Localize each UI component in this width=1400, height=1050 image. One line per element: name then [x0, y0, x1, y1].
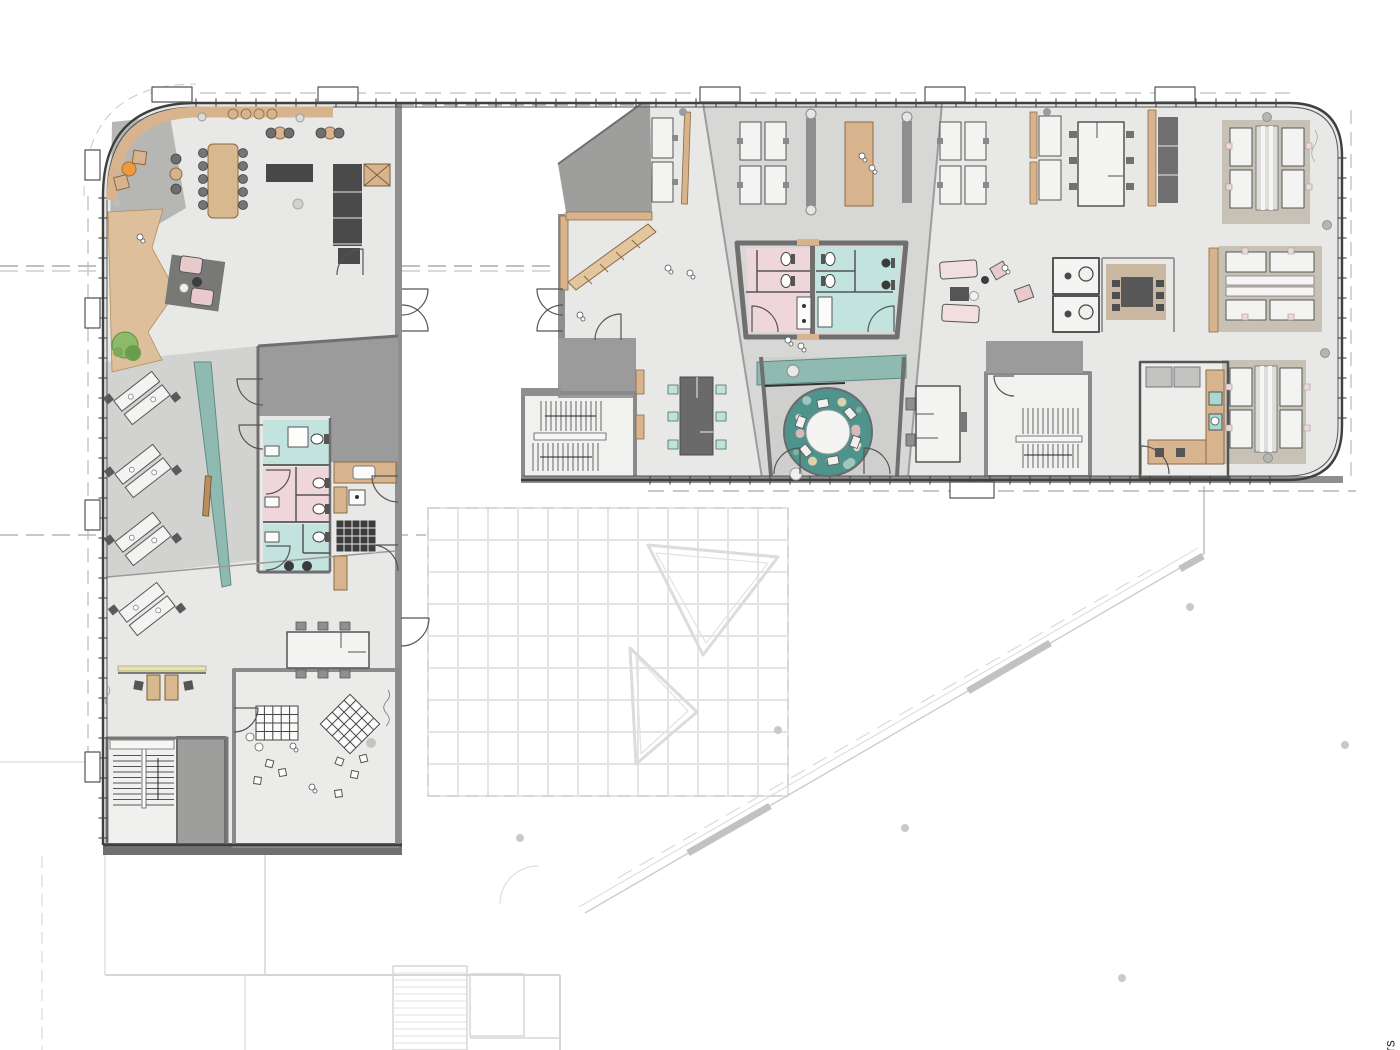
- high-table: [170, 168, 182, 180]
- window-bay: [85, 500, 100, 530]
- booth-armchair: [1079, 305, 1093, 319]
- toilet: [825, 253, 835, 266]
- plan-circle: [1065, 273, 1072, 280]
- toilet: [311, 434, 323, 444]
- stool: [266, 128, 276, 138]
- chair: [133, 680, 143, 690]
- toilet: [313, 478, 325, 488]
- plan-rect: [1226, 276, 1314, 285]
- wood-desk: [147, 675, 160, 700]
- sink-teal: [1209, 392, 1222, 405]
- plan-rect: [986, 341, 1083, 373]
- conference-table: [1078, 122, 1124, 206]
- stool: [316, 128, 326, 138]
- plan-circle: [970, 292, 979, 301]
- bench-wood: [566, 212, 652, 220]
- column: [1263, 113, 1272, 122]
- storage-room: [558, 104, 652, 212]
- plan-rect: [1269, 126, 1273, 210]
- plan-circle: [246, 733, 254, 741]
- plan-circle: [113, 199, 121, 207]
- orange-side-table: [122, 162, 136, 176]
- stool: [171, 154, 181, 164]
- plan-rect: [325, 504, 330, 514]
- desk: [1282, 128, 1304, 166]
- column: [679, 108, 687, 116]
- plan-circle: [241, 109, 251, 119]
- divider: [806, 118, 816, 206]
- desk: [652, 118, 673, 158]
- plan-circle: [806, 109, 816, 119]
- plan-rect: [1306, 143, 1312, 149]
- plant: [125, 345, 141, 361]
- plan-line: [688, 806, 770, 853]
- plan-rect: [1226, 425, 1232, 431]
- cabinet: [1174, 367, 1200, 387]
- sideboard: [266, 164, 313, 182]
- plan-rect: [325, 532, 330, 542]
- door-arc: [402, 305, 428, 331]
- chair: [1126, 131, 1134, 138]
- coffee-table: [950, 287, 969, 301]
- wood-stool: [132, 150, 147, 165]
- column: [1264, 454, 1273, 463]
- round-booth-table: [806, 410, 850, 454]
- high-bench-wood: [845, 122, 873, 206]
- toilet: [781, 275, 791, 288]
- wood-desk: [165, 675, 178, 700]
- chair: [199, 201, 208, 210]
- chair: [1069, 157, 1077, 164]
- sink: [265, 446, 279, 456]
- desk: [1280, 410, 1302, 448]
- chair: [1156, 280, 1164, 287]
- plan-rect: [534, 433, 606, 440]
- window-bay: [85, 298, 100, 328]
- chair: [1112, 280, 1120, 287]
- chair: [1156, 292, 1164, 299]
- chair: [340, 670, 350, 678]
- plan-rect: [1256, 126, 1278, 210]
- cube-stool: [278, 768, 286, 776]
- column: [1043, 108, 1051, 116]
- sink-counter: [818, 297, 832, 327]
- plan-polygon: [656, 553, 768, 643]
- bench-wood: [560, 216, 568, 290]
- cube-stool: [265, 759, 274, 768]
- toilet: [313, 504, 325, 514]
- plan-line: [579, 548, 1198, 907]
- chair: [906, 434, 915, 446]
- long-wood-table: [208, 144, 238, 218]
- wood-strip: [1030, 112, 1037, 158]
- plan-rect: [1260, 366, 1264, 452]
- chair: [1126, 183, 1134, 190]
- divider: [902, 121, 912, 203]
- stool: [171, 184, 181, 194]
- pendant: [198, 113, 206, 121]
- window-bay: [700, 87, 740, 102]
- plan-rect: [1226, 287, 1314, 296]
- plan-rect: [821, 254, 825, 264]
- plan-rect: [1226, 143, 1232, 149]
- plan-circle: [774, 726, 782, 734]
- plan-rect: [1261, 126, 1265, 210]
- wood-strip: [1209, 248, 1218, 332]
- plan-circle: [1341, 741, 1349, 749]
- stool: [1176, 448, 1185, 457]
- chair: [199, 162, 208, 171]
- locker: [1158, 117, 1178, 203]
- chair: [906, 398, 915, 410]
- plan-circle: [802, 319, 806, 323]
- chair-teal: [716, 412, 726, 421]
- wood-strip: [1030, 162, 1037, 204]
- chair: [296, 670, 306, 678]
- cube-stool: [335, 790, 343, 798]
- window-bay: [85, 752, 100, 782]
- shower: [288, 427, 308, 447]
- stair-treads: [393, 973, 467, 1043]
- plan-polygon: [636, 656, 688, 754]
- floor-plan-drawing: [0, 0, 1400, 1050]
- wood-stool: [114, 175, 130, 191]
- plan-line: [968, 643, 1050, 691]
- sink: [265, 497, 279, 507]
- plan-circle: [516, 834, 524, 842]
- window-bay: [950, 482, 994, 498]
- chair: [183, 680, 193, 690]
- chair: [239, 162, 248, 171]
- plan-circle: [1118, 974, 1126, 982]
- plan-rect: [1268, 366, 1272, 452]
- plan-rect: [110, 740, 174, 749]
- urinal: [302, 561, 312, 571]
- desk: [652, 162, 673, 202]
- plant: [113, 347, 123, 357]
- urinal: [284, 561, 294, 571]
- chair: [239, 149, 248, 158]
- chair: [1069, 183, 1077, 190]
- plan-rect: [791, 276, 795, 286]
- cabinet: [1146, 367, 1172, 387]
- plan-rect: [1242, 248, 1248, 254]
- plan-rect: [1016, 436, 1082, 442]
- plan-line: [1180, 556, 1203, 569]
- column: [1321, 349, 1330, 358]
- plan-rect: [521, 388, 561, 396]
- chair: [199, 175, 208, 184]
- plan-circle: [228, 109, 238, 119]
- wood-threshold: [797, 334, 819, 340]
- chair-teal: [668, 385, 678, 394]
- chair: [239, 201, 248, 210]
- plan-circle: [806, 205, 816, 215]
- chair: [296, 622, 306, 630]
- plan-circle: [180, 284, 189, 293]
- desk: [1230, 410, 1252, 448]
- elevator-shaft: [177, 737, 225, 844]
- chair-teal: [716, 385, 726, 394]
- plan-rect: [324, 434, 329, 444]
- chair: [199, 188, 208, 197]
- desk: [1226, 252, 1266, 272]
- plan-circle: [901, 824, 909, 832]
- chair: [1112, 292, 1120, 299]
- stool: [284, 128, 294, 138]
- floor-plan-page: © blocher partners: [0, 0, 1400, 1050]
- desk: [1039, 160, 1061, 200]
- sofa-pink: [942, 304, 980, 323]
- plan-rect: [791, 254, 795, 264]
- plan-rect: [1242, 314, 1248, 320]
- plan-rect: [1288, 314, 1294, 320]
- plan-circle: [902, 112, 912, 122]
- chair: [239, 175, 248, 184]
- plan-rect: [1304, 425, 1310, 431]
- wood-strip: [636, 415, 644, 439]
- sink: [265, 532, 279, 542]
- desk: [1280, 368, 1302, 406]
- window-bay: [152, 87, 192, 102]
- window-bay: [1155, 87, 1195, 102]
- plan-rect: [1306, 184, 1312, 190]
- meeting-table: [287, 632, 369, 668]
- yellow-bench: [118, 666, 206, 671]
- meeting-table-dark: [1121, 277, 1153, 307]
- pendant: [296, 114, 304, 122]
- plan-circle: [981, 276, 989, 284]
- desk: [1230, 170, 1252, 208]
- atrium-ceiling-grid: [428, 508, 788, 796]
- plan-circle: [1211, 417, 1219, 425]
- plan-circle: [1186, 603, 1194, 611]
- sofa-pink: [939, 260, 977, 280]
- toilet: [825, 275, 835, 288]
- desk: [1230, 128, 1252, 166]
- chair: [239, 188, 248, 197]
- wood-strip: [636, 370, 644, 394]
- door-arc: [402, 289, 428, 315]
- urinal: [882, 259, 891, 268]
- armchair-pink: [190, 288, 214, 307]
- chair: [1069, 131, 1077, 138]
- chair: [318, 670, 328, 678]
- plan-circle: [267, 109, 277, 119]
- plan-rect: [1226, 384, 1232, 390]
- plan-circle: [255, 743, 263, 751]
- booth-armchair: [1079, 267, 1093, 281]
- plan-rect: [325, 478, 330, 488]
- plan-rect: [142, 748, 146, 808]
- chair-teal: [668, 412, 678, 421]
- chair-teal: [716, 440, 726, 449]
- stool: [334, 128, 344, 138]
- desk: [1039, 116, 1061, 156]
- neighbor-elevator: [470, 974, 524, 1036]
- chair: [340, 622, 350, 630]
- chair: [199, 149, 208, 158]
- plan-rect: [1288, 248, 1294, 254]
- chair: [318, 622, 328, 630]
- desk: [1270, 252, 1314, 272]
- copyright-text: © blocher partners: [1383, 1040, 1398, 1050]
- plan-circle: [1065, 311, 1072, 318]
- armchair-pink: [179, 256, 203, 275]
- plan-rect: [1304, 384, 1310, 390]
- cube-stool: [350, 770, 358, 778]
- window-bay: [318, 87, 358, 102]
- plan-rect: [1255, 366, 1277, 452]
- column: [1323, 221, 1332, 230]
- window-bay: [925, 87, 965, 102]
- plan-circle: [192, 277, 202, 287]
- urinal: [882, 281, 891, 290]
- door-arc: [401, 618, 429, 646]
- plan-circle: [802, 304, 806, 308]
- white-table: [916, 386, 960, 462]
- plan-circle: [787, 365, 799, 377]
- desk: [1230, 368, 1252, 406]
- dark-tile-floor: [336, 520, 376, 552]
- toilet: [781, 253, 791, 266]
- chair: [1112, 304, 1120, 311]
- plan-rect: [960, 412, 967, 432]
- plan-rect: [334, 487, 347, 513]
- plan-rect: [1226, 184, 1232, 190]
- plan-circle: [366, 738, 376, 748]
- chair: [1126, 157, 1134, 164]
- plan-circle: [293, 199, 303, 209]
- wood-threshold: [797, 239, 819, 245]
- chair: [1156, 304, 1164, 311]
- plan-rect: [821, 276, 825, 286]
- plan-path: [500, 866, 538, 904]
- desk: [1282, 170, 1304, 208]
- plan-circle: [355, 495, 359, 499]
- cube-stool: [254, 777, 262, 785]
- wood-strip: [1148, 110, 1156, 206]
- plan-rect: [672, 179, 678, 185]
- plan-rect: [672, 135, 678, 141]
- workshop-floor: [234, 672, 396, 844]
- plan-rect: [334, 556, 347, 590]
- kitchen-counter-dark: [333, 164, 362, 246]
- sink-counter: [797, 297, 811, 329]
- chair-teal: [668, 440, 678, 449]
- workshop-grid-table: [256, 706, 298, 740]
- utility-room: [558, 338, 636, 398]
- toilet: [313, 532, 325, 542]
- cube-stool: [359, 754, 368, 763]
- window-bay: [85, 150, 100, 180]
- plan-rect: [891, 280, 895, 290]
- plan-circle: [254, 109, 264, 119]
- plan-rect: [891, 258, 895, 268]
